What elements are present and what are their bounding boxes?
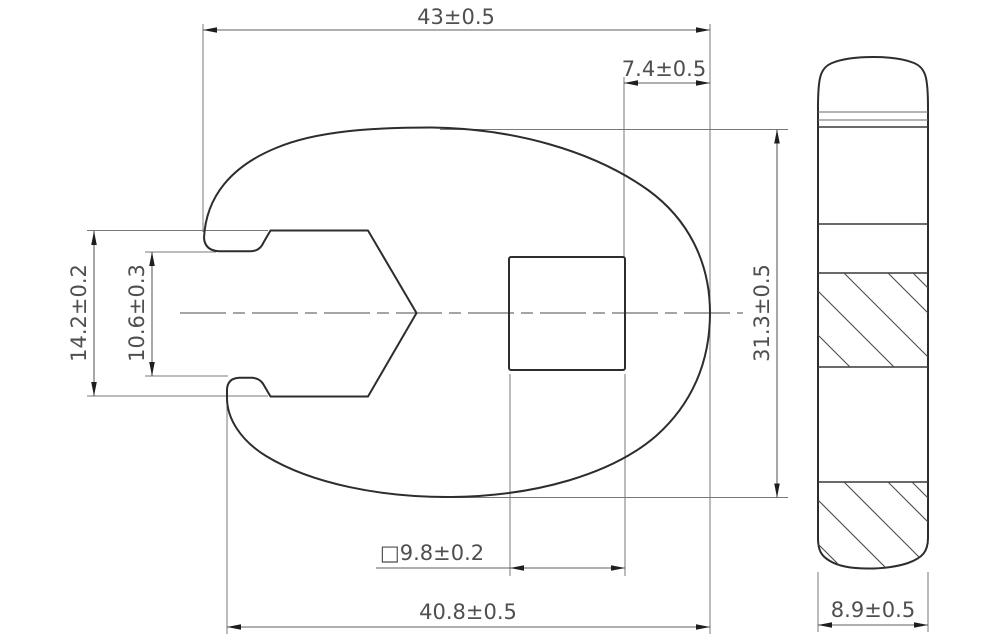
dimension-label-jaw-opening: 14.2±0.2 [67,264,91,362]
technical-drawing-page: 43±0.5 7.4±0.5 14.2±0.2 10.6±0.3 31.3±0.… [0,0,1000,643]
dimension-drive-offset: 7.4±0.5 [622,57,710,86]
extension-lines [87,24,928,634]
dimension-overall-width: 43±0.5 [203,5,710,33]
arrowhead [624,80,638,86]
hatch-line [844,273,928,357]
arrowhead [510,565,524,571]
arrowhead [774,484,780,498]
arrowhead [203,27,217,33]
arrowhead [611,565,625,571]
dimension-label-throat-opening: 10.6±0.3 [125,264,149,362]
dimension-square-drive: □9.8±0.2 [376,541,625,571]
hatch-line [888,482,928,522]
dimension-jaw-opening: 14.2±0.2 [67,231,97,396]
hatch-line [818,500,892,574]
hatch-band-upper [818,273,928,367]
hatch-line [912,482,928,498]
arrowhead [914,622,928,628]
arrowhead [227,624,241,630]
dimension-body-height: 31.3±0.5 [750,130,780,498]
dimension-lower-width: 40.8±0.5 [227,600,710,630]
arrowhead [696,27,710,33]
arrowhead [696,80,710,86]
dimension-label-lower-width: 40.8±0.5 [419,600,517,624]
arrowhead [149,362,155,376]
dimension-throat-opening: 10.6±0.3 [125,252,155,376]
dimension-label-profile-thickness: 8.9±0.5 [831,598,915,622]
main-view-wrench-outline [204,128,710,498]
arrowhead [696,624,710,630]
dimension-label-square-drive: □9.8±0.2 [380,541,484,565]
arrowhead [774,130,780,144]
hatch-line [844,482,930,568]
hatch-line [818,544,848,574]
arrowhead [149,252,155,266]
hatch-line [818,291,894,367]
arrowhead [91,382,97,396]
technical-drawing-canvas: 43±0.5 7.4±0.5 14.2±0.2 10.6±0.3 31.3±0.… [0,0,1000,643]
dimension-label-drive-offset: 7.4±0.5 [622,57,706,81]
dimension-profile-thickness: 8.9±0.5 [818,598,928,628]
side-view-outline [818,57,928,569]
hatch-line [818,335,850,367]
dimension-label-body-height: 31.3±0.5 [750,264,774,362]
arrowhead [818,622,832,628]
arrowhead [91,231,97,245]
hatch-line [913,273,928,288]
hatch-line [888,273,928,313]
dimension-label-overall-width: 43±0.5 [417,5,495,29]
